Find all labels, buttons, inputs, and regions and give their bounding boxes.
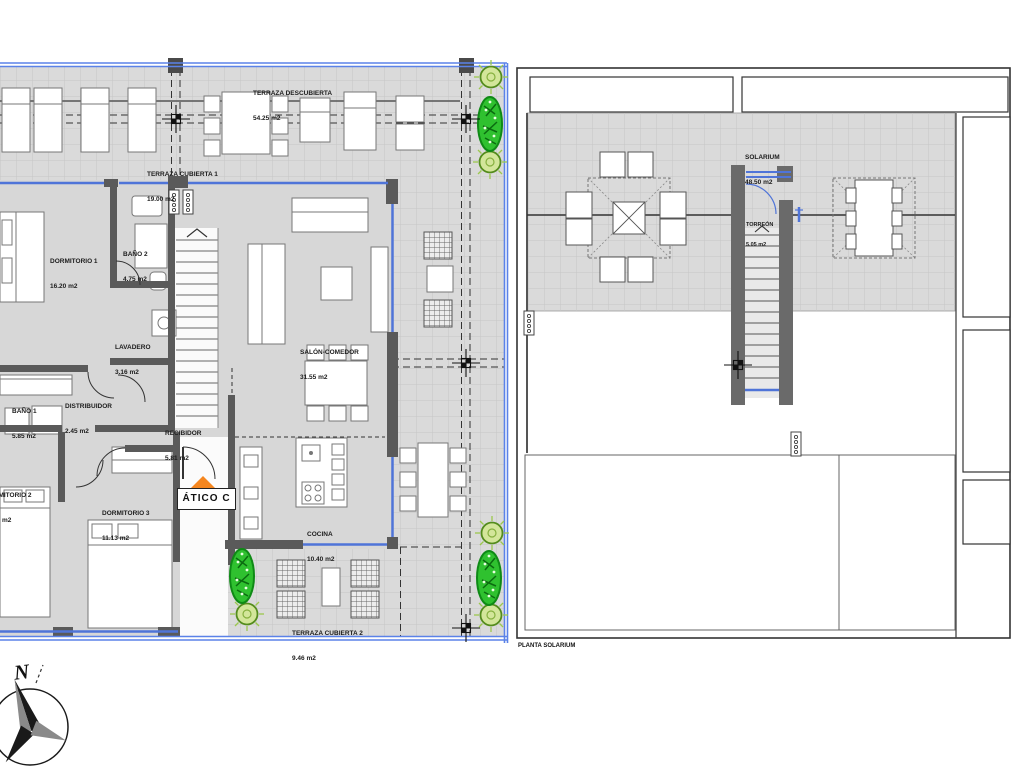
room-label-bano-1: BAÑO 1 5.85 m2 — [12, 392, 37, 457]
room-label-terraza-cubierta-1: TERRAZA CUBIERTA 1 19.00 m2 — [147, 155, 218, 220]
room-area: 3.16 m2 — [115, 369, 151, 377]
unit-label-text: ÁTICO C — [182, 494, 230, 504]
room-area: m2 — [2, 517, 32, 525]
room-name: DORMITORIO 1 — [50, 258, 98, 266]
room-area: 11.13 m2 — [102, 535, 150, 543]
room-name: TERRAZA CUBIERTA 1 — [147, 171, 218, 179]
floorplan-page: TERRAZA DESCUBIERTA 54.25 m2 TERRAZA CUB… — [0, 0, 1024, 768]
room-area: 10.40 m2 — [307, 556, 334, 564]
room-area: 19.00 m2 — [147, 196, 218, 204]
room-label-salon-comedor: SALÓN-COMEDOR 31.55 m2 — [300, 333, 359, 398]
room-label-terraza-cubierta-2: TERRAZA CUBIERTA 2 9.46 m2 — [292, 614, 363, 679]
room-label-dormitorio-3: DORMITORIO 3 11.13 m2 — [102, 494, 150, 559]
room-name: RECIBIDOR — [165, 430, 201, 438]
room-name: TERRAZA DESCUBIERTA — [253, 90, 332, 98]
room-name: BAÑO 2 — [123, 251, 148, 259]
room-label-solarium: SOLARIUM 48.50 m2 — [745, 138, 780, 203]
room-area: 48.50 m2 — [745, 179, 780, 187]
room-label-dormitorio-2: DORMITORIO 2 m2 — [0, 476, 32, 541]
room-name: SOLARIUM — [745, 154, 780, 162]
room-label-lavadero: LAVADERO 3.16 m2 — [115, 328, 151, 393]
plan-caption-text: PLANTA SOLARIUM — [518, 643, 575, 649]
room-name: LAVADERO — [115, 344, 151, 352]
room-name: COCINA — [307, 531, 334, 539]
room-name: BAÑO 1 — [12, 408, 37, 416]
room-label-dormitorio-1: DORMITORIO 1 16.20 m2 — [50, 242, 98, 307]
room-label-bano-2: BAÑO 2 4.75 m2 — [123, 235, 148, 300]
room-name: DORMITORIO 2 — [0, 492, 32, 500]
room-area: 2.45 m2 — [65, 428, 112, 436]
room-label-terraza-descubierta: TERRAZA DESCUBIERTA 54.25 m2 — [253, 74, 332, 139]
plan-caption: PLANTA SOLARIUM — [518, 643, 575, 650]
floor-plan-drawing — [0, 0, 1024, 768]
room-label-recibidor: RECIBIDOR 5.81 m2 — [165, 414, 201, 479]
room-name: SALÓN-COMEDOR — [300, 349, 359, 357]
room-name: DISTRIBUIDOR — [65, 403, 112, 411]
panel-icon — [524, 311, 534, 335]
compass-icon — [0, 665, 68, 765]
room-area: 9.46 m2 — [292, 655, 363, 663]
room-area: 16.20 m2 — [50, 283, 98, 291]
north-label: N — [13, 661, 30, 683]
room-label-distribuidor: DISTRIBUIDOR 2.45 m2 — [65, 387, 112, 452]
room-name: TORREÓN — [746, 222, 773, 229]
room-area: 31.55 m2 — [300, 374, 359, 382]
room-label-torreon: TORREÓN 5.05 m2 — [746, 208, 773, 263]
room-name: DORMITORIO 3 — [102, 510, 150, 518]
room-area: 4.75 m2 — [123, 276, 148, 284]
room-area: 5.81 m2 — [165, 455, 201, 463]
room-area: 54.25 m2 — [253, 115, 332, 123]
room-label-cocina: COCINA 10.40 m2 — [307, 515, 334, 580]
room-area: 5.05 m2 — [746, 242, 773, 249]
room-name: TERRAZA CUBIERTA 2 — [292, 630, 363, 638]
panel-icon — [791, 432, 801, 456]
north-label-text: N — [13, 659, 31, 684]
unit-label-atico-c: ÁTICO C — [177, 488, 236, 510]
atico-plan — [0, 58, 509, 643]
room-area: 5.85 m2 — [12, 433, 37, 441]
